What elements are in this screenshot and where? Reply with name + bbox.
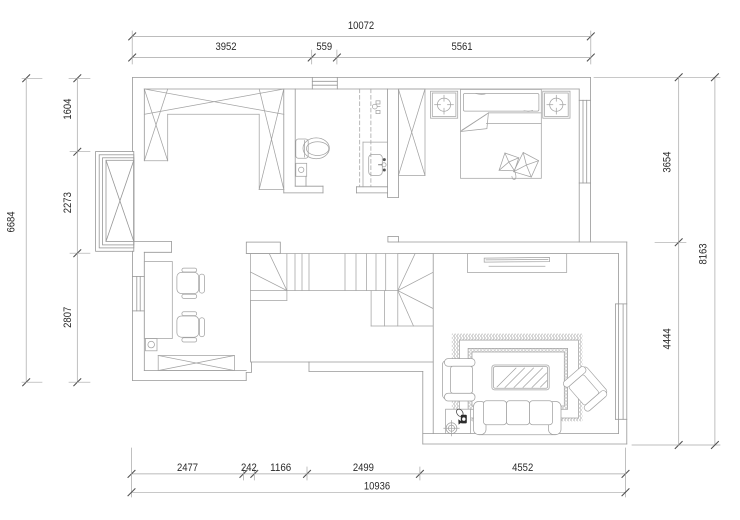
svg-text:242: 242 [241,462,257,474]
svg-text:10936: 10936 [364,480,390,492]
svg-text:2807: 2807 [62,307,74,328]
svg-text:2273: 2273 [62,192,74,213]
svg-text:10072: 10072 [348,20,374,32]
svg-text:2477: 2477 [177,462,198,474]
svg-text:4552: 4552 [512,462,533,474]
svg-text:3654: 3654 [661,152,673,173]
svg-text:1604: 1604 [62,99,74,120]
svg-text:2499: 2499 [353,462,374,474]
svg-text:6684: 6684 [6,211,18,232]
svg-text:3952: 3952 [215,41,236,53]
svg-text:1166: 1166 [270,462,291,474]
svg-text:4444: 4444 [661,328,673,349]
svg-text:559: 559 [316,41,332,53]
svg-text:8163: 8163 [698,243,710,264]
svg-text:5561: 5561 [451,41,472,53]
